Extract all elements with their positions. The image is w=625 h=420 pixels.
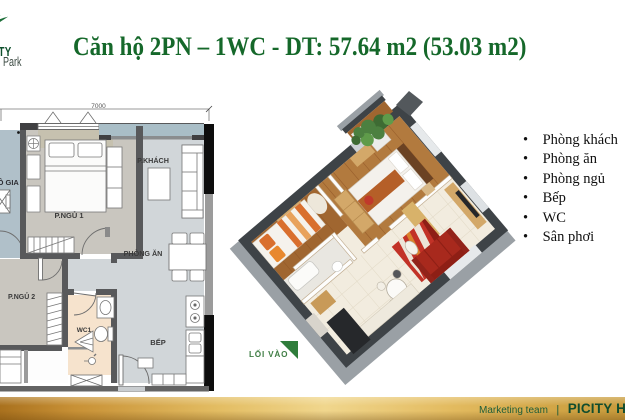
svg-text:PHÒNG ĂN: PHÒNG ĂN [124, 249, 163, 258]
svg-text:LÔ GIA: LÔ GIA [0, 178, 19, 187]
svg-text:WC1: WC1 [77, 327, 92, 334]
svg-text:P.NGỦ 2: P.NGỦ 2 [8, 292, 35, 301]
svg-text:7000: 7000 [91, 103, 106, 110]
svg-text:LỐI VÀO: LỐI VÀO [249, 348, 288, 359]
svg-text:BẾP: BẾP [150, 337, 165, 347]
svg-text:P.KHÁCH: P.KHÁCH [137, 156, 169, 165]
svg-text:P.NGỦ 1: P.NGỦ 1 [54, 211, 83, 220]
